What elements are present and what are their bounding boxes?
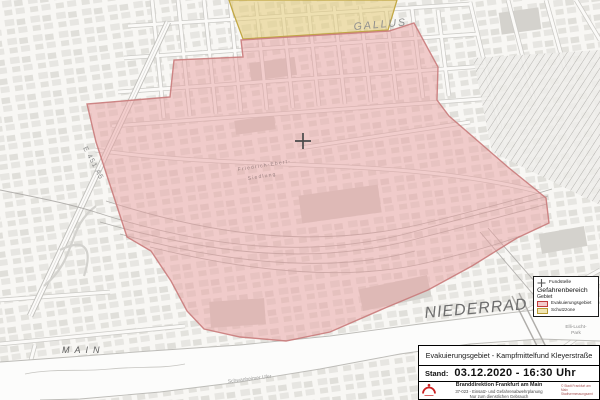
legend-item-evakuierungsgebiet: Evakuierungsgebiet (537, 301, 595, 308)
organization-row: Branddirektion Frankfurt am Main 37-023 … (418, 381, 600, 400)
map-document: GALLUS NIEDERRAD MAIN E 451 A5 Friedrich… (0, 0, 600, 400)
legend-fundstelle-row: Fundstelle (537, 279, 595, 287)
map-title: Evakuierungsgebiet - Kampfmittelfund Kle… (418, 345, 600, 366)
title-block: Evakuierungsgebiet - Kampfmittelfund Kle… (418, 345, 600, 400)
feuerwehr-logo (421, 383, 437, 398)
legend-item-label: Schutzzone (551, 308, 575, 313)
status-row: Stand: 03.12.2020 - 16:30 Uhr (418, 365, 600, 382)
legend-subsection-title: Gebiet (537, 295, 595, 300)
stand-label: Stand: (425, 369, 448, 378)
org-name: Branddirektion Frankfurt am Main (456, 382, 543, 389)
crosshair-icon (537, 279, 546, 287)
copyright-line1: © Stadt Frankfurt am Main (561, 384, 597, 392)
legend-fundstelle-label: Fundstelle (549, 281, 571, 286)
park-label-line1: Elli-Lucht- (565, 324, 587, 330)
organization-text: Branddirektion Frankfurt am Main 37-023 … (439, 382, 559, 399)
copyright-line2: Stadtvermessungsamt (561, 392, 597, 396)
park-label-line2: Park (571, 330, 581, 336)
stand-timestamp: 03.12.2020 - 16:30 Uhr (454, 367, 576, 379)
legend-item-schutzzone: Schutzzone (537, 308, 595, 315)
evacuation-zone-swatch (537, 301, 548, 308)
legend-item-label: Evakuierungsgebiet (551, 301, 591, 306)
river-label-main: MAIN (62, 345, 105, 355)
org-usage-note: Nur zum dienstlichen Gebrauch (470, 394, 529, 399)
street-map-canvas: GALLUS NIEDERRAD MAIN E 451 A5 Friedrich… (0, 0, 600, 400)
protection-zone-swatch (537, 308, 548, 315)
copyright-note: © Stadt Frankfurt am Main Stadtvermessun… (561, 384, 597, 396)
legend-box: Fundstelle Gefahrenbereich Gebiet Evakui… (533, 276, 599, 317)
